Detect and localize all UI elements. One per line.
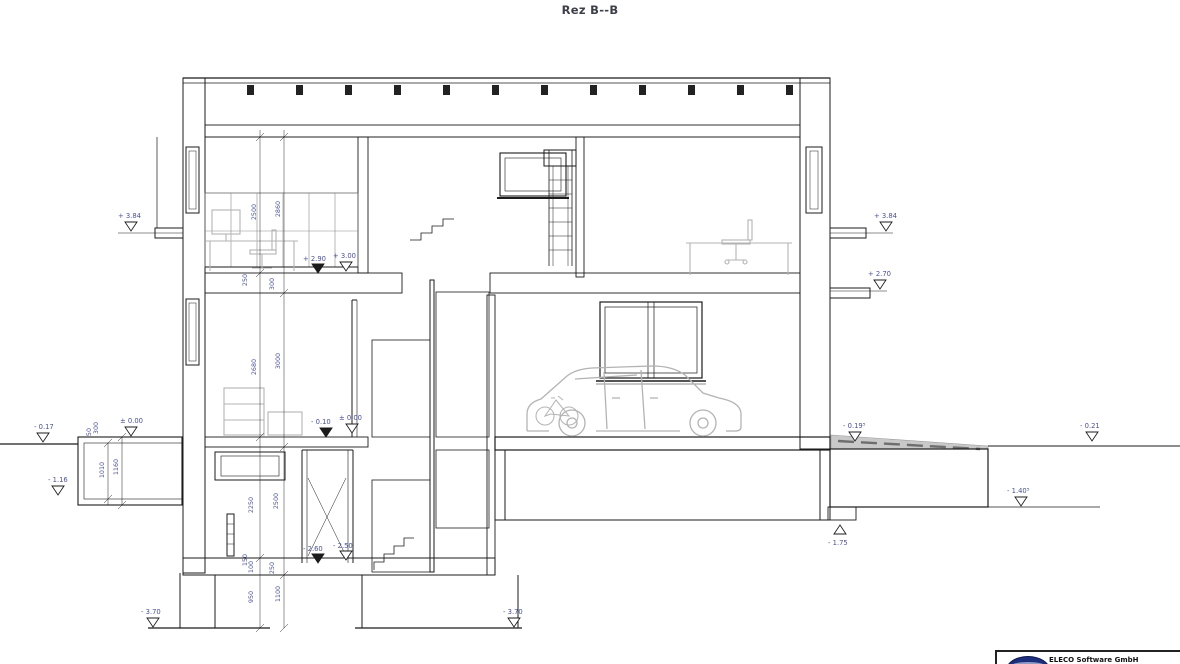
dim-label: 1010	[98, 462, 106, 478]
right-wall	[800, 78, 830, 449]
stair-newel-post	[430, 280, 434, 572]
elevation-label: + 2.90	[303, 255, 326, 263]
elevation-label: + 3.84	[118, 212, 141, 220]
elevation-label: - 1.16	[48, 476, 68, 484]
basement-floor-slab	[183, 558, 495, 575]
furniture	[206, 210, 792, 435]
logo-text: ELECO Software GmbH	[1049, 656, 1139, 664]
chair-left	[250, 250, 276, 254]
elevation-label: + 3.84	[874, 212, 897, 220]
dim-label: 1160	[112, 459, 120, 475]
elevation-label: - 0.21	[1080, 422, 1100, 430]
elevation-label: - 0.19⁵	[843, 422, 866, 430]
roof-slab	[205, 125, 800, 137]
roof-joist-ticks	[214, 84, 796, 95]
partition-top-floor	[358, 137, 368, 273]
floor-slab-upper-left	[205, 273, 402, 293]
elevation-label: ± 0.00	[339, 414, 362, 422]
drawing-sheet: Rez B--B	[0, 0, 1180, 664]
elevation-label: - 0.17	[34, 423, 54, 431]
sunken-court	[830, 449, 988, 507]
elevation-label: - 1.40⁵	[1007, 487, 1030, 495]
car	[527, 366, 741, 436]
elevation-label: + 2.70	[868, 270, 891, 278]
dim-label: 2500	[250, 204, 258, 220]
radiator	[227, 514, 234, 556]
dim-label: 2860	[274, 201, 282, 217]
floor-slab-upper-right	[490, 273, 800, 293]
floor-slab-ground-left	[205, 437, 368, 447]
monitor	[212, 210, 240, 234]
basement-window	[215, 452, 285, 480]
stair-top-steps	[410, 219, 454, 240]
section-drawing: + 3.84 - 0.17 ± 0.00 - 1.16 - 3.70 + 2.9…	[0, 0, 1180, 664]
left-facade-window-lower	[186, 299, 199, 365]
dim-label: 950	[247, 591, 255, 603]
dim-label: 300	[92, 422, 100, 434]
dim-label: 250	[241, 274, 249, 286]
elevation-label: - 3.70	[141, 608, 161, 616]
cabinet	[224, 388, 264, 435]
garage-window	[596, 302, 706, 384]
elevation-label: - 2.60	[303, 545, 323, 553]
left-facade-window-upper	[186, 147, 199, 213]
eleco-globe-icon	[1006, 656, 1050, 664]
elevation-label: - 3.70	[503, 608, 523, 616]
dim-label: 3000	[274, 353, 282, 369]
dim-label: 1100	[274, 586, 282, 602]
dim-label: 2500	[272, 493, 280, 509]
stair-bottom-steps	[374, 538, 414, 570]
elevation-label: - 0.10	[311, 418, 331, 426]
right-facade-window	[806, 147, 822, 213]
terrain	[0, 435, 1180, 520]
garage-floor-slab	[495, 437, 830, 450]
dim-label: 2680	[250, 359, 258, 375]
elevation-label: - 2.50	[333, 542, 353, 550]
dim-label: 2250	[247, 497, 255, 513]
elevation-label: ± 0.00	[120, 417, 143, 425]
rooflight-window	[497, 153, 569, 198]
dim-label: 100	[247, 561, 255, 573]
ladder	[544, 150, 576, 266]
elevation-label: - 1.75	[828, 539, 848, 547]
elevation-label: + 3.00	[333, 252, 356, 260]
stair-enclosure-wall	[487, 295, 495, 575]
logo-box: ELECO Software GmbH	[995, 650, 1180, 664]
wall-top-floor-mid	[576, 137, 584, 277]
elevation-marks: + 3.84 - 0.17 ± 0.00 - 1.16 - 3.70 + 2.9…	[34, 212, 1100, 627]
spiral-stair	[372, 150, 576, 572]
dim-label: 300	[268, 278, 276, 290]
sideboard	[268, 412, 302, 435]
right-canopy-lower	[830, 288, 870, 298]
dim-label: 250	[268, 562, 276, 574]
